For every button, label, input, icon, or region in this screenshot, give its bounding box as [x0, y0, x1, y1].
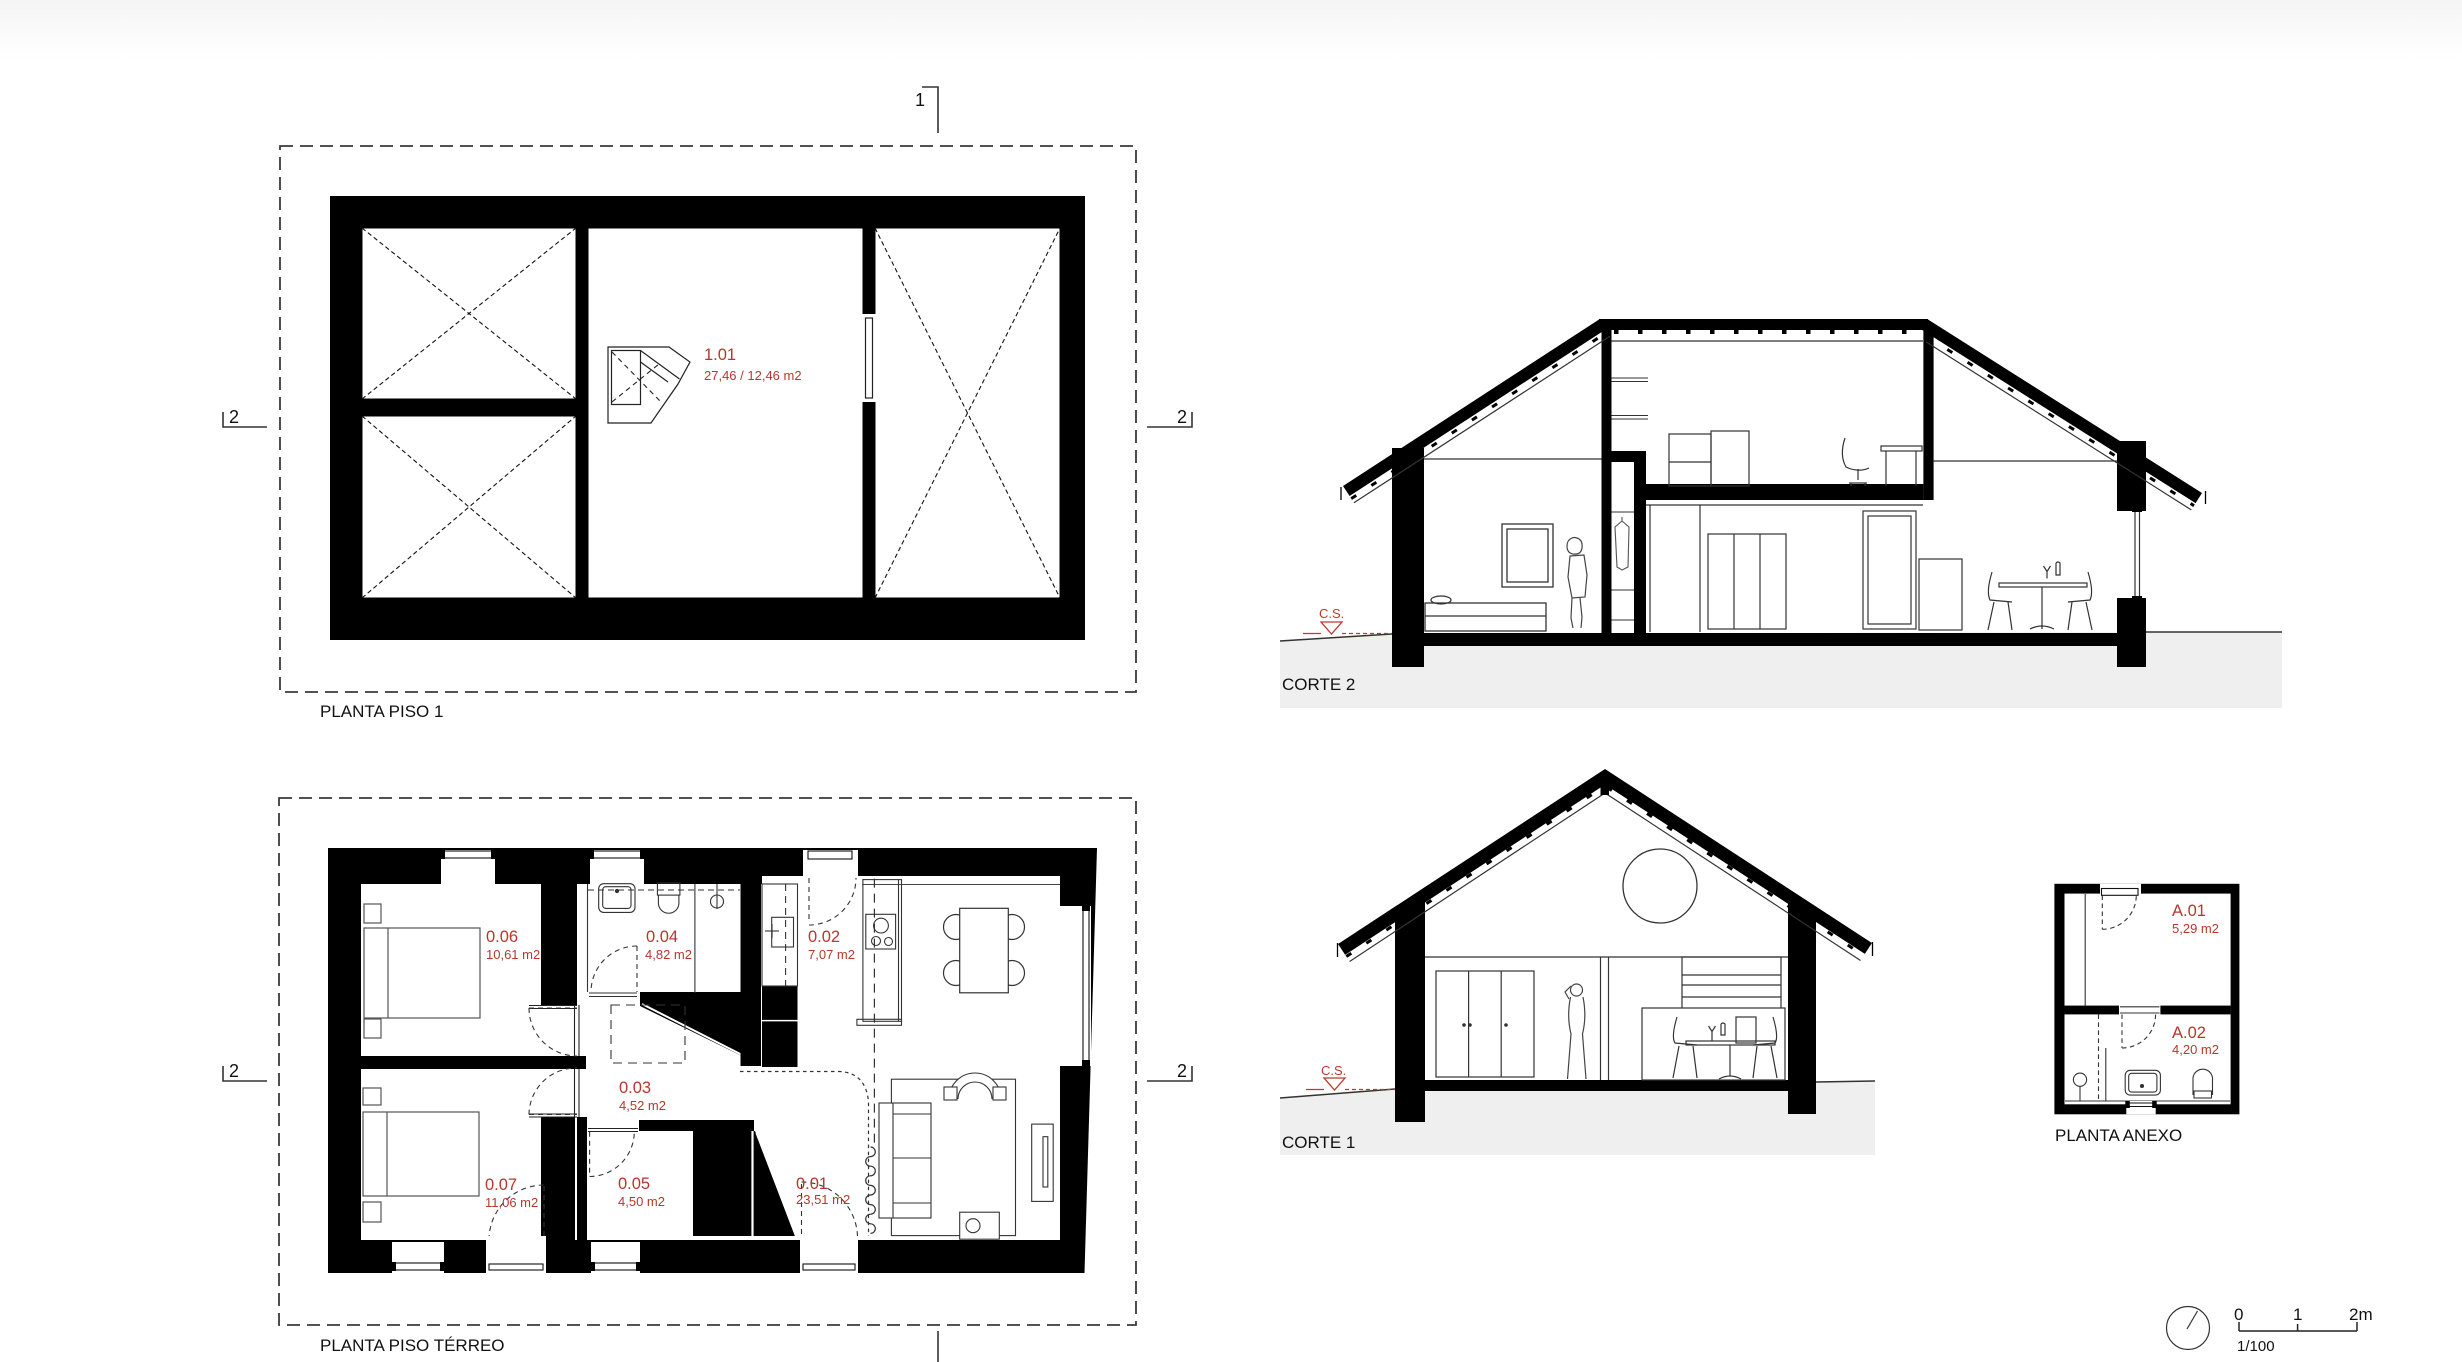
svg-text:1: 1 — [2293, 1305, 2302, 1324]
svg-text:PLANTA PISO TÉRREO: PLANTA PISO TÉRREO — [320, 1336, 505, 1355]
svg-text:CORTE 2: CORTE 2 — [1282, 675, 1355, 694]
svg-text:1/100: 1/100 — [2237, 1338, 2275, 1355]
svg-text:4,82 m2: 4,82 m2 — [645, 947, 692, 962]
svg-text:0.01: 0.01 — [796, 1175, 828, 1193]
svg-text:2: 2 — [229, 1061, 239, 1081]
svg-text:2: 2 — [1177, 1061, 1187, 1081]
svg-text:7,07 m2: 7,07 m2 — [808, 947, 855, 962]
svg-text:1.01: 1.01 — [704, 346, 736, 364]
svg-text:23,51 m2: 23,51 m2 — [796, 1192, 850, 1207]
svg-text:0.06: 0.06 — [486, 928, 518, 946]
svg-text:PLANTA ANEXO: PLANTA ANEXO — [2055, 1126, 2182, 1145]
svg-text:0.03: 0.03 — [619, 1079, 651, 1097]
svg-text:A.01: A.01 — [2172, 902, 2206, 920]
svg-text:0: 0 — [2234, 1305, 2243, 1324]
svg-text:4,50 m2: 4,50 m2 — [618, 1194, 665, 1209]
svg-text:5,29 m2: 5,29 m2 — [2172, 921, 2219, 936]
svg-text:2: 2 — [1177, 407, 1187, 427]
svg-text:0.04: 0.04 — [646, 928, 678, 946]
svg-text:4,52 m2: 4,52 m2 — [619, 1098, 666, 1113]
svg-text:C.S.: C.S. — [1319, 606, 1344, 621]
svg-text:10,61 m2: 10,61 m2 — [486, 947, 540, 962]
svg-text:0.07: 0.07 — [485, 1176, 517, 1194]
svg-text:27,46 / 12,46 m2: 27,46 / 12,46 m2 — [704, 368, 802, 383]
svg-text:PLANTA PISO 1: PLANTA PISO 1 — [320, 702, 443, 721]
svg-text:1: 1 — [915, 90, 925, 110]
svg-text:2: 2 — [229, 407, 239, 427]
svg-text:C.S.: C.S. — [1321, 1063, 1346, 1078]
svg-text:0.05: 0.05 — [618, 1175, 650, 1193]
svg-text:0.02: 0.02 — [808, 928, 840, 946]
svg-text:11,06 m2: 11,06 m2 — [485, 1195, 538, 1210]
svg-text:4,20 m2: 4,20 m2 — [2172, 1042, 2219, 1057]
svg-text:CORTE 1: CORTE 1 — [1282, 1133, 1355, 1152]
svg-text:A.02: A.02 — [2172, 1024, 2206, 1042]
svg-text:2m: 2m — [2349, 1305, 2373, 1324]
